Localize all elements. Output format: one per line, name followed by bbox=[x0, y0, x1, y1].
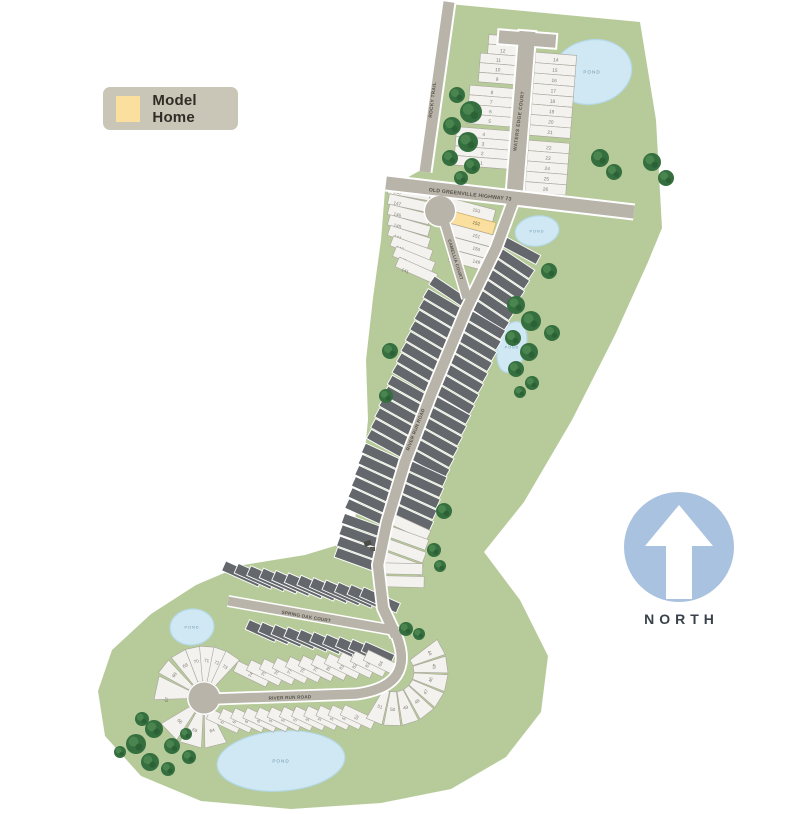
lot-number: 26 bbox=[543, 187, 549, 193]
tree bbox=[521, 311, 541, 331]
lot[interactable] bbox=[382, 563, 422, 575]
tree-shade bbox=[532, 383, 537, 388]
tree bbox=[382, 343, 398, 359]
tree bbox=[141, 753, 159, 771]
tree bbox=[449, 87, 465, 103]
tree-shade bbox=[520, 392, 524, 396]
tree bbox=[541, 263, 557, 279]
tree bbox=[434, 560, 446, 572]
tree-shade bbox=[440, 566, 444, 570]
tree-shade bbox=[614, 172, 620, 178]
camellia-culdesac bbox=[425, 196, 455, 226]
lot-number: 24 bbox=[544, 166, 550, 172]
tree-shade bbox=[444, 511, 450, 517]
tree bbox=[505, 330, 521, 346]
tree-shade bbox=[468, 142, 475, 149]
tree-shade bbox=[434, 550, 439, 555]
tree bbox=[514, 386, 526, 398]
lot-number: 10 bbox=[495, 67, 501, 73]
tree bbox=[591, 149, 609, 167]
pond-label: POND bbox=[185, 626, 200, 630]
tree-shade bbox=[666, 178, 672, 184]
tree bbox=[643, 153, 661, 171]
lot-number: 16 bbox=[551, 78, 557, 84]
legend: Model Home bbox=[103, 87, 238, 130]
tree bbox=[460, 101, 482, 123]
tree-shade bbox=[386, 396, 391, 401]
tree bbox=[135, 712, 149, 726]
tree-shade bbox=[472, 166, 478, 172]
tree-shade bbox=[529, 352, 535, 358]
tree-shade bbox=[531, 321, 538, 328]
tree bbox=[379, 389, 393, 403]
tree bbox=[399, 622, 413, 636]
tree-shade bbox=[470, 111, 478, 119]
tree-shade bbox=[450, 158, 456, 164]
tree-shade bbox=[652, 162, 658, 168]
tree bbox=[180, 728, 192, 740]
tree bbox=[508, 361, 524, 377]
tree bbox=[114, 746, 126, 758]
lot-number: 12 bbox=[500, 48, 506, 54]
lot-number: 71 bbox=[204, 658, 210, 663]
lot[interactable] bbox=[384, 576, 424, 588]
north-arrow-glyph bbox=[624, 492, 734, 602]
tree bbox=[182, 750, 196, 764]
pond-label: POND bbox=[272, 759, 289, 764]
tree bbox=[544, 325, 560, 341]
tree bbox=[442, 150, 458, 166]
lot-number: 17 bbox=[550, 88, 556, 94]
tree bbox=[427, 543, 441, 557]
tree bbox=[458, 132, 478, 152]
tree-shade bbox=[600, 158, 606, 164]
north-arrow-shape bbox=[645, 505, 713, 599]
legend-label: Model Home bbox=[152, 92, 238, 126]
lot-number: 18 bbox=[550, 99, 556, 105]
tree-shade bbox=[457, 95, 463, 101]
model-home-swatch bbox=[116, 96, 140, 122]
tree-shade bbox=[513, 338, 519, 344]
north-label: NORTH bbox=[623, 611, 735, 627]
tree-shade bbox=[452, 126, 458, 132]
lot-number: 25 bbox=[543, 176, 549, 182]
tree-shade bbox=[419, 634, 423, 638]
tree-shade bbox=[168, 769, 173, 774]
north-indicator: NORTH bbox=[623, 492, 735, 627]
tree-shade bbox=[549, 271, 555, 277]
tree bbox=[606, 164, 622, 180]
tree bbox=[464, 158, 480, 174]
tree-shade bbox=[172, 746, 178, 752]
tree bbox=[520, 343, 538, 361]
tree bbox=[658, 170, 674, 186]
tree bbox=[164, 738, 180, 754]
site-plan-page: 1312111098765432114151617181920212223242… bbox=[0, 0, 808, 814]
tree bbox=[161, 762, 175, 776]
lot-number: 20 bbox=[548, 119, 554, 125]
tree-shade bbox=[136, 744, 143, 751]
lot-number: 14 bbox=[553, 57, 559, 63]
lot-number: 11 bbox=[496, 58, 502, 64]
tree-shade bbox=[461, 178, 466, 183]
tree-shade bbox=[154, 729, 160, 735]
north-arrow bbox=[624, 492, 734, 602]
lot-number: 22 bbox=[546, 145, 552, 151]
tree bbox=[443, 117, 461, 135]
lot-number: 21 bbox=[547, 130, 553, 136]
tree-shade bbox=[390, 351, 396, 357]
tree bbox=[507, 296, 525, 314]
tree-shade bbox=[142, 719, 147, 724]
lot-number: 15 bbox=[552, 68, 558, 74]
tree-shade bbox=[516, 369, 522, 375]
structure-marker bbox=[370, 547, 375, 551]
tree-shade bbox=[186, 734, 190, 738]
tree-shade bbox=[516, 305, 522, 311]
lot-number: 19 bbox=[549, 109, 555, 115]
tree-shade bbox=[189, 757, 194, 762]
tree bbox=[525, 376, 539, 390]
lot-number: 23 bbox=[545, 156, 551, 162]
tree-shade bbox=[150, 762, 156, 768]
pond-label: POND bbox=[583, 70, 600, 75]
tree-shade bbox=[552, 333, 558, 339]
pond-label: POND bbox=[530, 230, 545, 234]
pond-label: POND bbox=[505, 346, 519, 350]
tree bbox=[413, 628, 425, 640]
tree bbox=[126, 734, 146, 754]
lot-number: 50 bbox=[390, 707, 396, 712]
tree bbox=[436, 503, 452, 519]
tree-shade bbox=[406, 629, 411, 634]
tree bbox=[454, 171, 468, 185]
tree-shade bbox=[120, 752, 124, 756]
